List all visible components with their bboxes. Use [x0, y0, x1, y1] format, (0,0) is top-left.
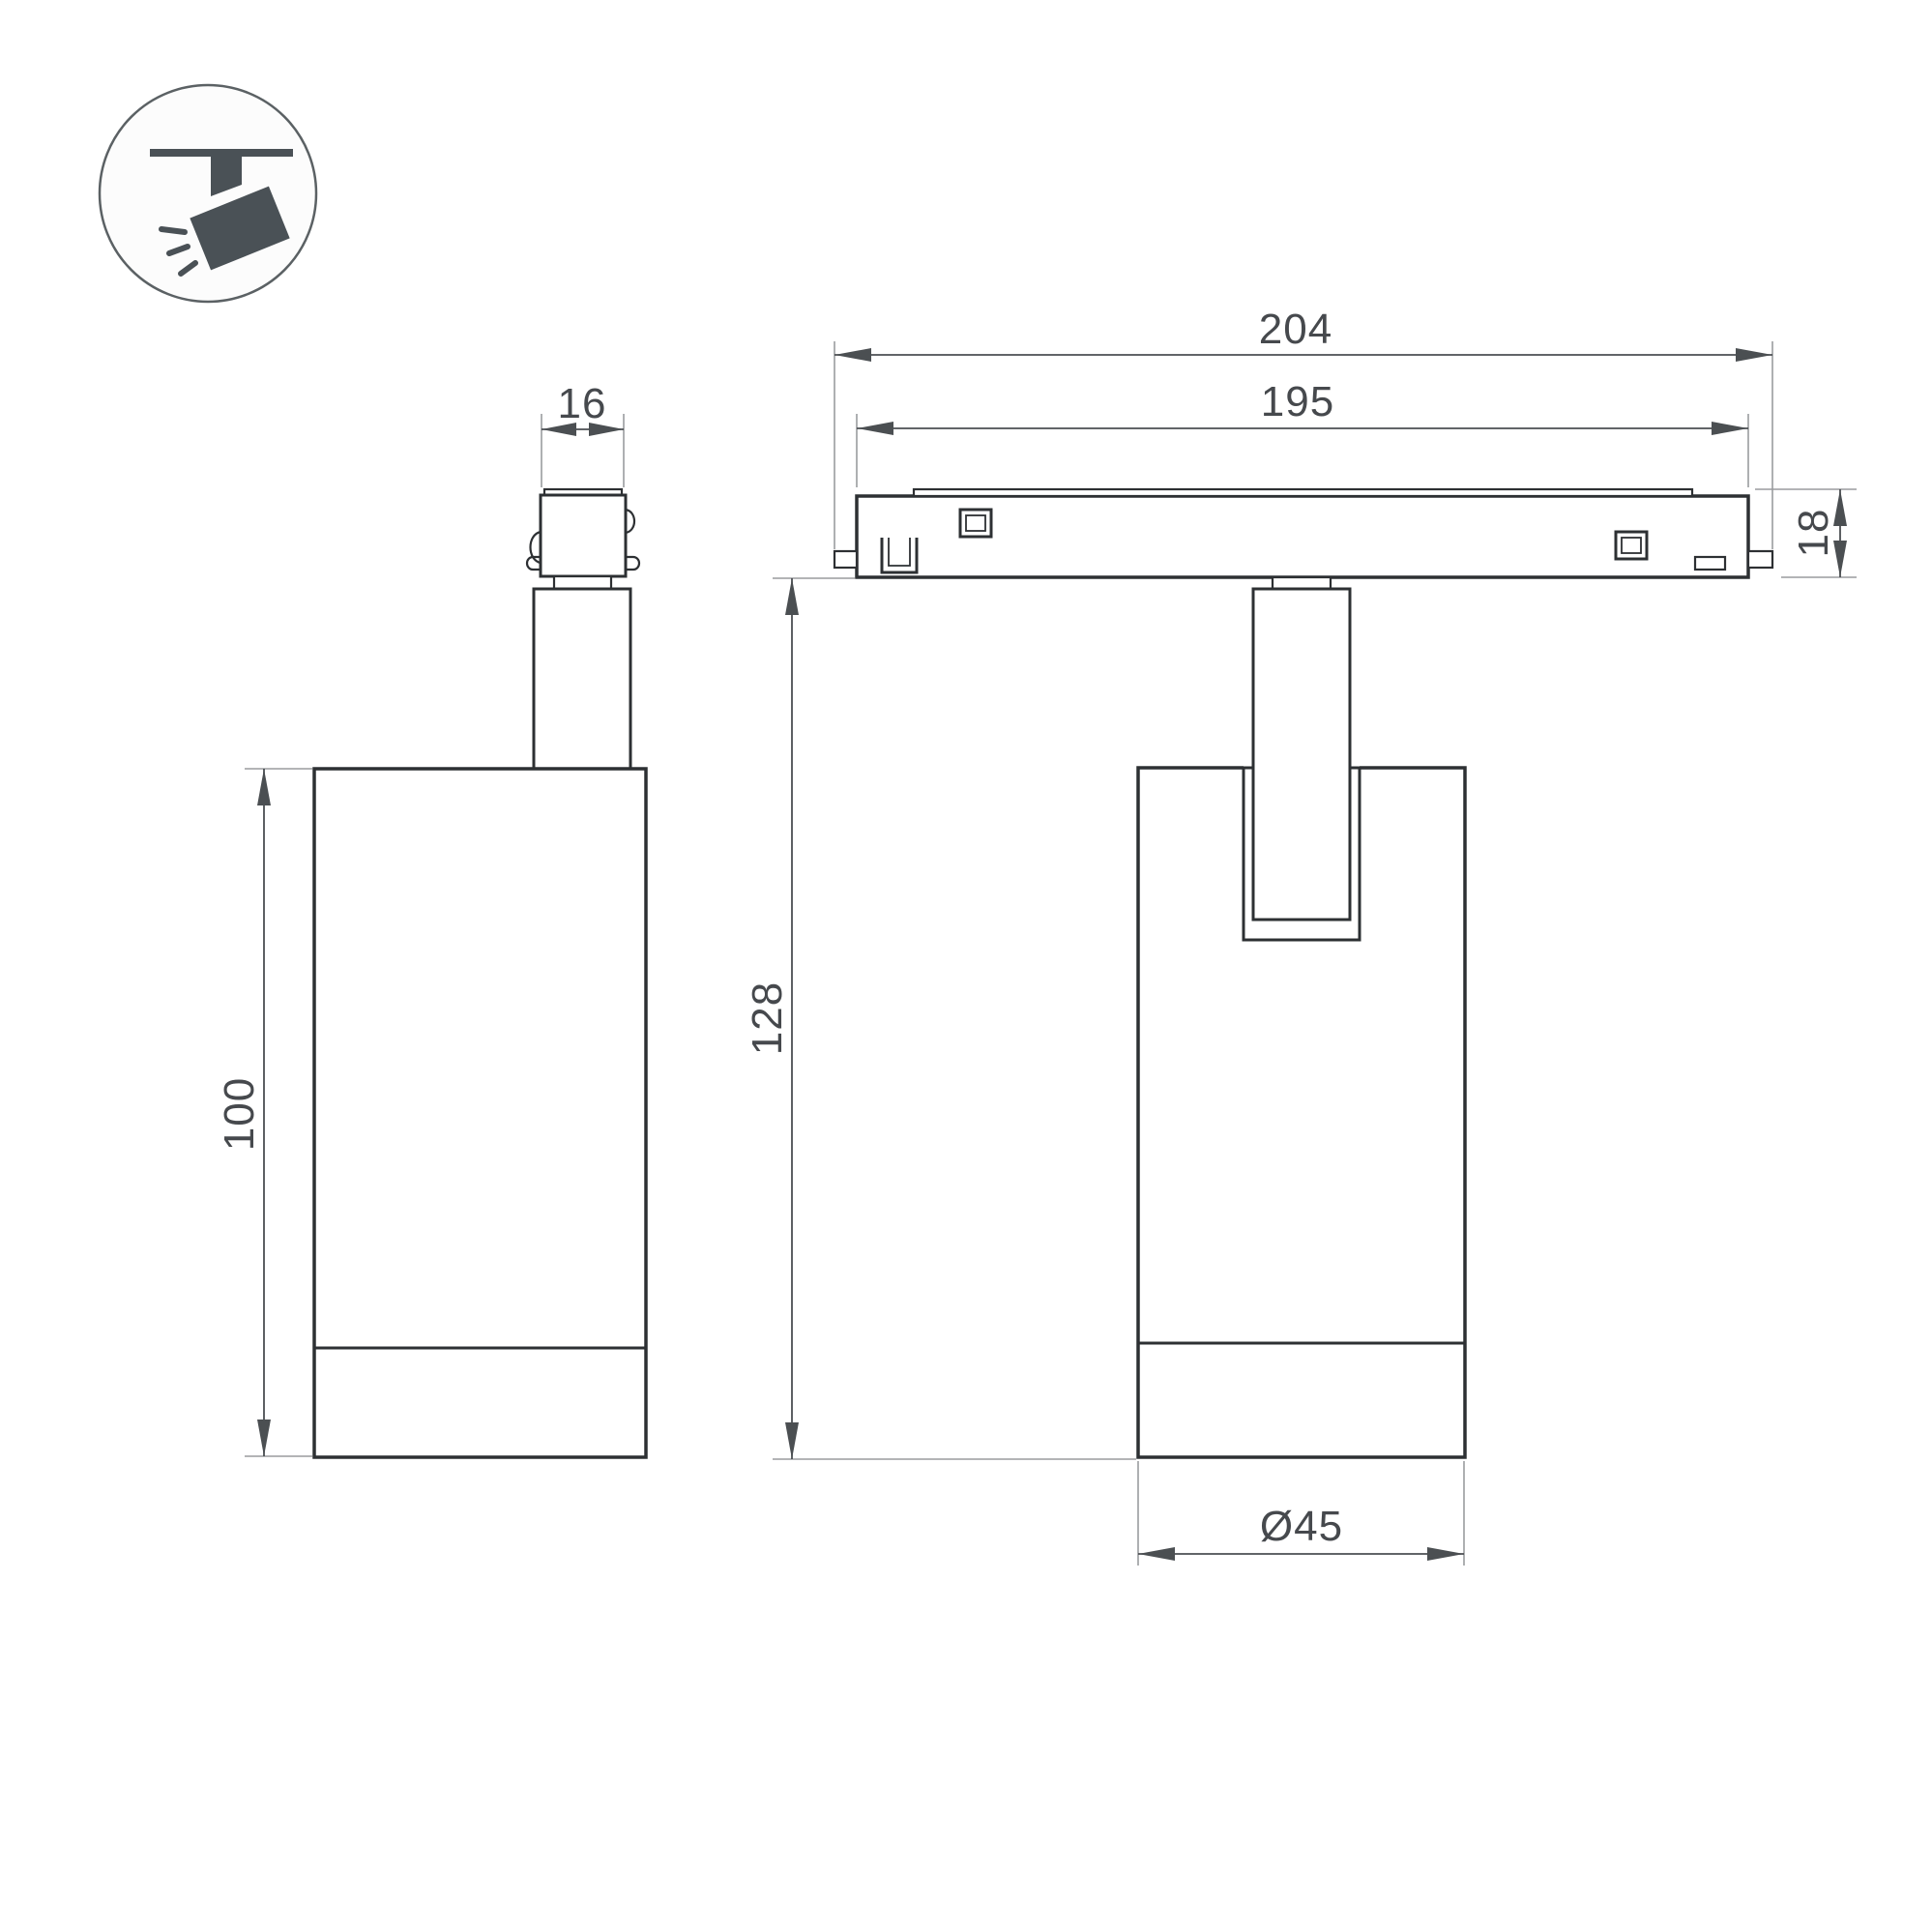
spot-body-side — [314, 769, 646, 1457]
dimension-label-204: 204 — [1259, 306, 1332, 353]
arrowhead-right — [1427, 1547, 1464, 1561]
arrowhead-bottom — [785, 1422, 799, 1459]
front-view — [834, 489, 1772, 1457]
arrowhead-right — [1712, 422, 1748, 435]
track-adapter-plate — [914, 489, 1692, 496]
arrowhead-top — [785, 578, 799, 615]
side-view — [314, 489, 646, 1457]
icon-track-bar — [150, 149, 293, 157]
arrowhead-left — [857, 422, 893, 435]
icon-light-ray — [161, 229, 185, 232]
pivot-neck-front — [1273, 577, 1331, 589]
dimension-label-16: 16 — [558, 380, 607, 427]
technical-drawing: 16 100 — [0, 0, 1932, 1932]
dimension-track-body-length: 195 — [857, 378, 1748, 487]
connector-clip-left — [531, 532, 542, 563]
arrowhead-left — [1138, 1547, 1175, 1561]
arrowhead-bottom — [257, 1420, 271, 1456]
dimension-drawing-page: 16 100 — [0, 0, 1932, 1932]
dimension-label-195: 195 — [1261, 378, 1334, 425]
dimension-body-height: 100 — [216, 769, 312, 1456]
pivot-neck — [554, 576, 611, 589]
pivot-arm-front — [1253, 589, 1350, 920]
dimension-label-100: 100 — [216, 1077, 263, 1151]
icon-circle — [100, 85, 316, 302]
adapter-end-tab-left — [834, 551, 857, 568]
dimension-label-18: 18 — [1790, 509, 1837, 558]
dimension-body-diameter: Ø45 — [1138, 1461, 1464, 1566]
dimension-connector-width: 16 — [542, 380, 624, 487]
arrowhead-right — [1736, 348, 1772, 362]
track-connector — [541, 495, 626, 576]
adapter-end-tab-right — [1748, 551, 1772, 568]
connector-tab-right — [626, 557, 639, 570]
dimension-label-128: 128 — [744, 981, 791, 1055]
dimension-overall-height: 128 — [744, 578, 1136, 1459]
arrowhead-top — [257, 769, 271, 805]
arrowhead-left — [834, 348, 871, 362]
pivot-arm — [534, 589, 630, 770]
track-spotlight-icon — [100, 85, 316, 302]
dimension-label-d45: Ø45 — [1260, 1503, 1343, 1550]
